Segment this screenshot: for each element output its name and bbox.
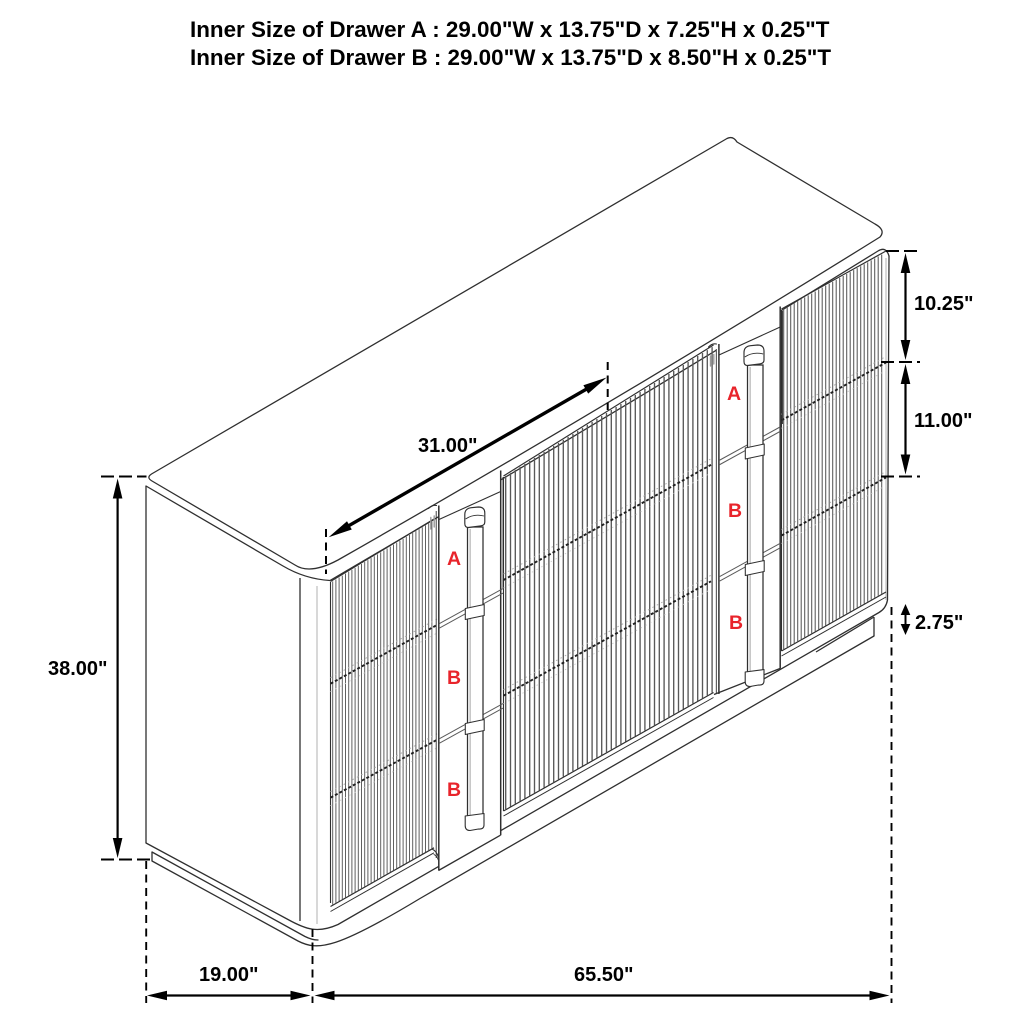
svg-text:Inner Size of Drawer B : 29.00: Inner Size of Drawer B : 29.00"W x 13.75…	[190, 45, 831, 70]
svg-text:2.75": 2.75"	[915, 612, 963, 634]
svg-text:65.50": 65.50"	[574, 964, 634, 986]
svg-text:10.25": 10.25"	[914, 293, 974, 315]
svg-text:31.00": 31.00"	[418, 435, 478, 457]
svg-text:B: B	[728, 500, 742, 522]
svg-text:B: B	[729, 612, 743, 634]
svg-text:19.00": 19.00"	[199, 964, 259, 986]
svg-text:A: A	[727, 383, 741, 405]
svg-text:11.00": 11.00"	[914, 410, 972, 432]
svg-text:Inner Size of Drawer A : 29.00: Inner Size of Drawer A : 29.00"W x 13.75…	[190, 17, 830, 42]
svg-text:B: B	[447, 779, 461, 801]
svg-text:38.00": 38.00"	[48, 658, 108, 680]
svg-text:B: B	[447, 667, 461, 689]
svg-text:A: A	[447, 548, 461, 570]
